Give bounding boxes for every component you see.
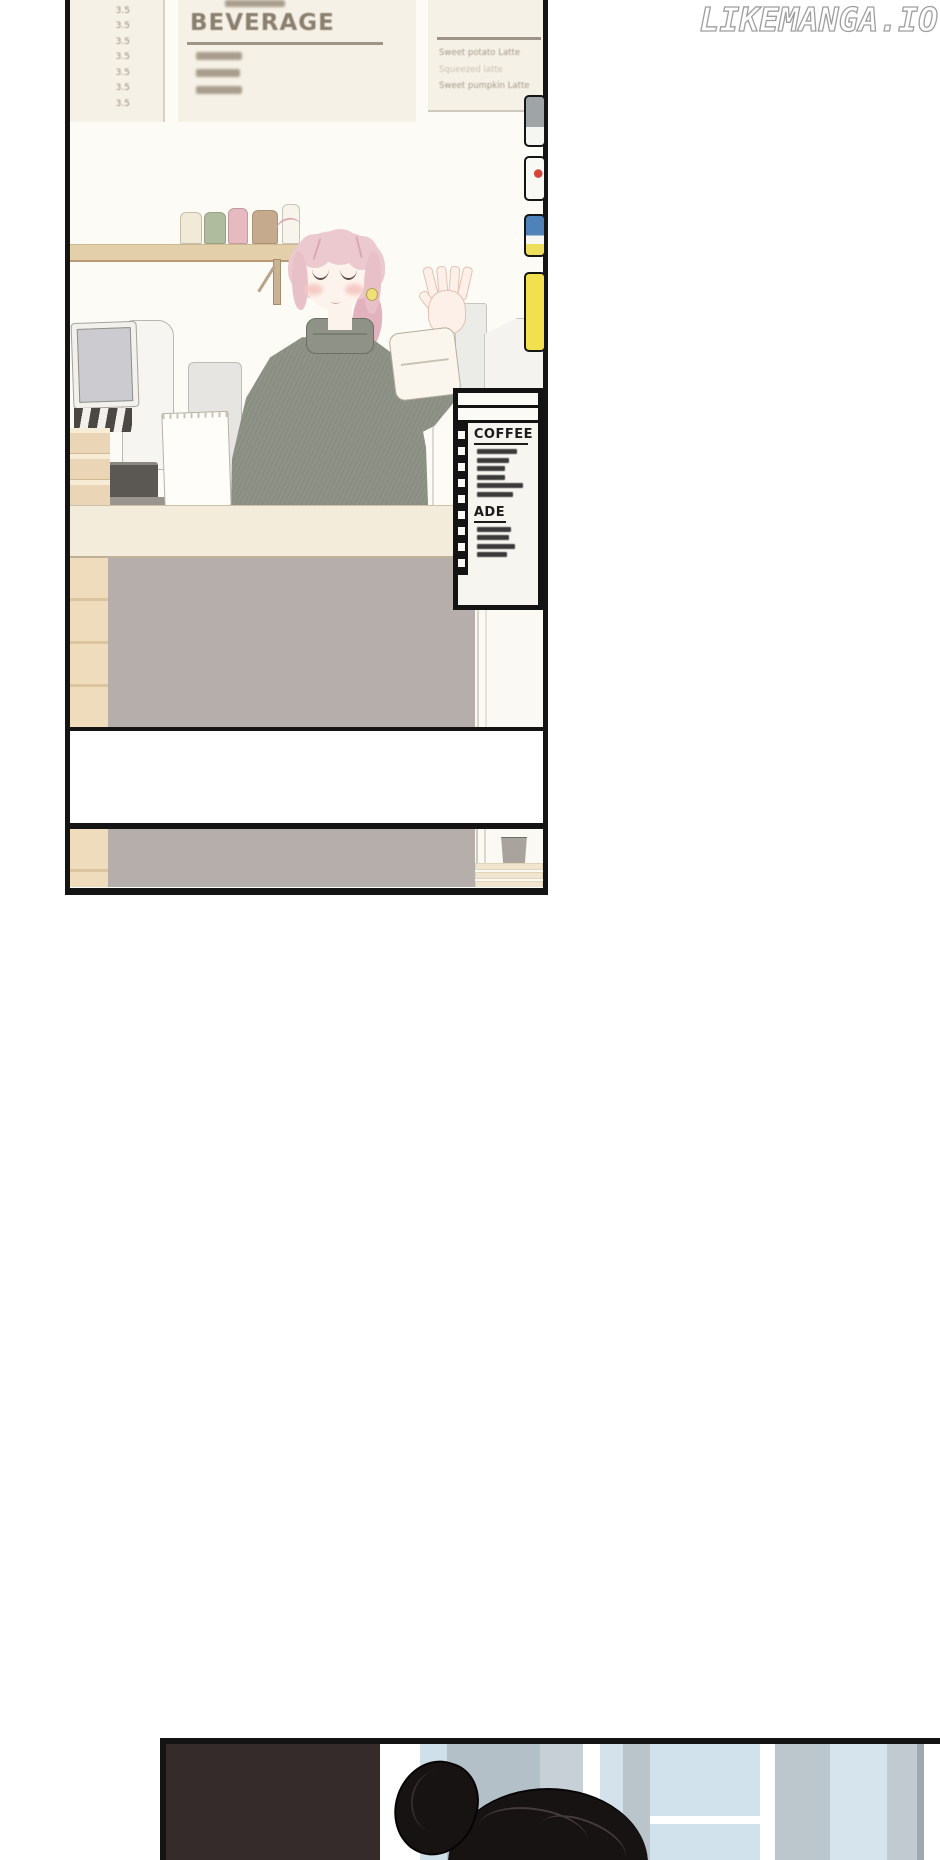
cropped-text-row bbox=[225, 0, 285, 7]
ade-item-blur bbox=[477, 527, 511, 532]
price-value: 3.5 bbox=[106, 50, 130, 65]
price-value: 3.5 bbox=[106, 19, 130, 34]
crate bbox=[70, 428, 110, 454]
wood-pillar-strip bbox=[70, 829, 108, 887]
cafe-panel: 3.53.53.53.53.53.53.5 BEVERAGE Sweet pot… bbox=[65, 0, 548, 895]
window-crossbar bbox=[650, 1816, 760, 1824]
blush-right bbox=[345, 284, 364, 295]
ade-menu-title: ADE bbox=[474, 505, 533, 520]
window-pane bbox=[924, 1744, 940, 1860]
price-list: 3.53.53.53.53.53.53.5 bbox=[106, 4, 130, 112]
counter-front-strip bbox=[108, 829, 475, 887]
manga-reader-page: LIKEMANGA.IO 3.53.53.53.53.53.53.5 BEVER… bbox=[0, 0, 940, 1860]
dark-wall-block bbox=[166, 1744, 380, 1860]
coffee-item-blur bbox=[477, 449, 517, 454]
coffee-item-blur bbox=[477, 475, 505, 480]
window-pane bbox=[887, 1744, 917, 1860]
coffee-item-blur bbox=[477, 458, 509, 463]
coffee-item-blur bbox=[477, 492, 513, 497]
coffee-item-blur bbox=[477, 466, 505, 471]
price-board: 3.53.53.53.53.53.53.5 bbox=[70, 0, 165, 122]
floor-mat bbox=[475, 872, 543, 879]
sweater-cuff bbox=[388, 326, 462, 402]
tumbler-cup bbox=[228, 208, 248, 244]
hanging-tag bbox=[524, 214, 546, 257]
hanging-tag bbox=[524, 95, 546, 147]
counter-front bbox=[108, 558, 475, 727]
beverage-underline bbox=[187, 42, 383, 45]
pos-screen-display bbox=[77, 327, 134, 403]
stand-body: COFFEE ADE bbox=[458, 423, 538, 575]
ade-item-list bbox=[474, 527, 533, 558]
beverage-item-blur bbox=[196, 52, 242, 60]
blank-beat-panel bbox=[70, 731, 543, 829]
blush-left bbox=[304, 284, 323, 295]
ade-underline bbox=[474, 521, 507, 523]
coffee-item-list bbox=[474, 449, 533, 497]
price-value: 3.5 bbox=[106, 66, 130, 81]
crate bbox=[70, 480, 110, 506]
stand-spiral-binding bbox=[458, 423, 468, 575]
pos-register-screen bbox=[71, 321, 140, 409]
crate bbox=[70, 454, 110, 480]
window-pane bbox=[830, 1744, 887, 1860]
counter-strip-scene bbox=[70, 829, 543, 887]
bottom-panel bbox=[160, 1738, 940, 1860]
coffee-underline bbox=[474, 443, 528, 445]
hanging-tag bbox=[524, 272, 546, 352]
coffee-menu-title: COFFEE bbox=[474, 427, 533, 442]
cafe-scene: 3.53.53.53.53.53.53.5 BEVERAGE Sweet pot… bbox=[70, 0, 543, 731]
tumbler-cup bbox=[252, 210, 278, 244]
waving-hand bbox=[426, 260, 472, 338]
stand-slat bbox=[458, 393, 538, 408]
ade-item-blur bbox=[477, 544, 515, 549]
menu-card: COFFEE ADE bbox=[468, 423, 538, 575]
floor-mat bbox=[475, 863, 543, 870]
hanging-tag bbox=[524, 156, 546, 201]
wood-pillar bbox=[70, 558, 108, 727]
beverage-board: BEVERAGE bbox=[178, 0, 416, 122]
beverage-item-list bbox=[196, 52, 242, 103]
border-tag-column bbox=[524, 0, 548, 380]
tumbler-cup bbox=[204, 212, 226, 244]
price-value: 3.5 bbox=[106, 35, 130, 50]
shelf-bracket bbox=[273, 259, 281, 305]
price-value: 3.5 bbox=[106, 97, 130, 112]
tumbler-cup bbox=[180, 212, 202, 244]
ade-item-blur bbox=[477, 535, 509, 540]
coffee-item-blur bbox=[477, 483, 523, 488]
beverage-item-blur bbox=[196, 69, 240, 77]
beverage-item-blur bbox=[196, 86, 242, 94]
mouth bbox=[331, 299, 340, 304]
price-value: 3.5 bbox=[106, 4, 130, 19]
stand-slat bbox=[458, 408, 538, 423]
beverage-title: BEVERAGE bbox=[190, 10, 335, 36]
menu-stand: COFFEE ADE bbox=[453, 388, 543, 610]
yellow-earring bbox=[366, 288, 378, 301]
window-pane bbox=[650, 1744, 760, 1860]
price-value: 3.5 bbox=[106, 81, 130, 96]
site-watermark: LIKEMANGA.IO bbox=[700, 0, 938, 39]
counter-notepad bbox=[161, 411, 231, 508]
window-pane bbox=[917, 1744, 924, 1860]
ade-item-blur bbox=[477, 552, 507, 557]
window-pane bbox=[775, 1744, 830, 1860]
bottom-scene bbox=[166, 1744, 940, 1860]
floor-strip bbox=[475, 829, 543, 887]
wooden-crates bbox=[70, 428, 110, 505]
floor-mat bbox=[475, 881, 543, 887]
window-pane bbox=[760, 1744, 775, 1860]
